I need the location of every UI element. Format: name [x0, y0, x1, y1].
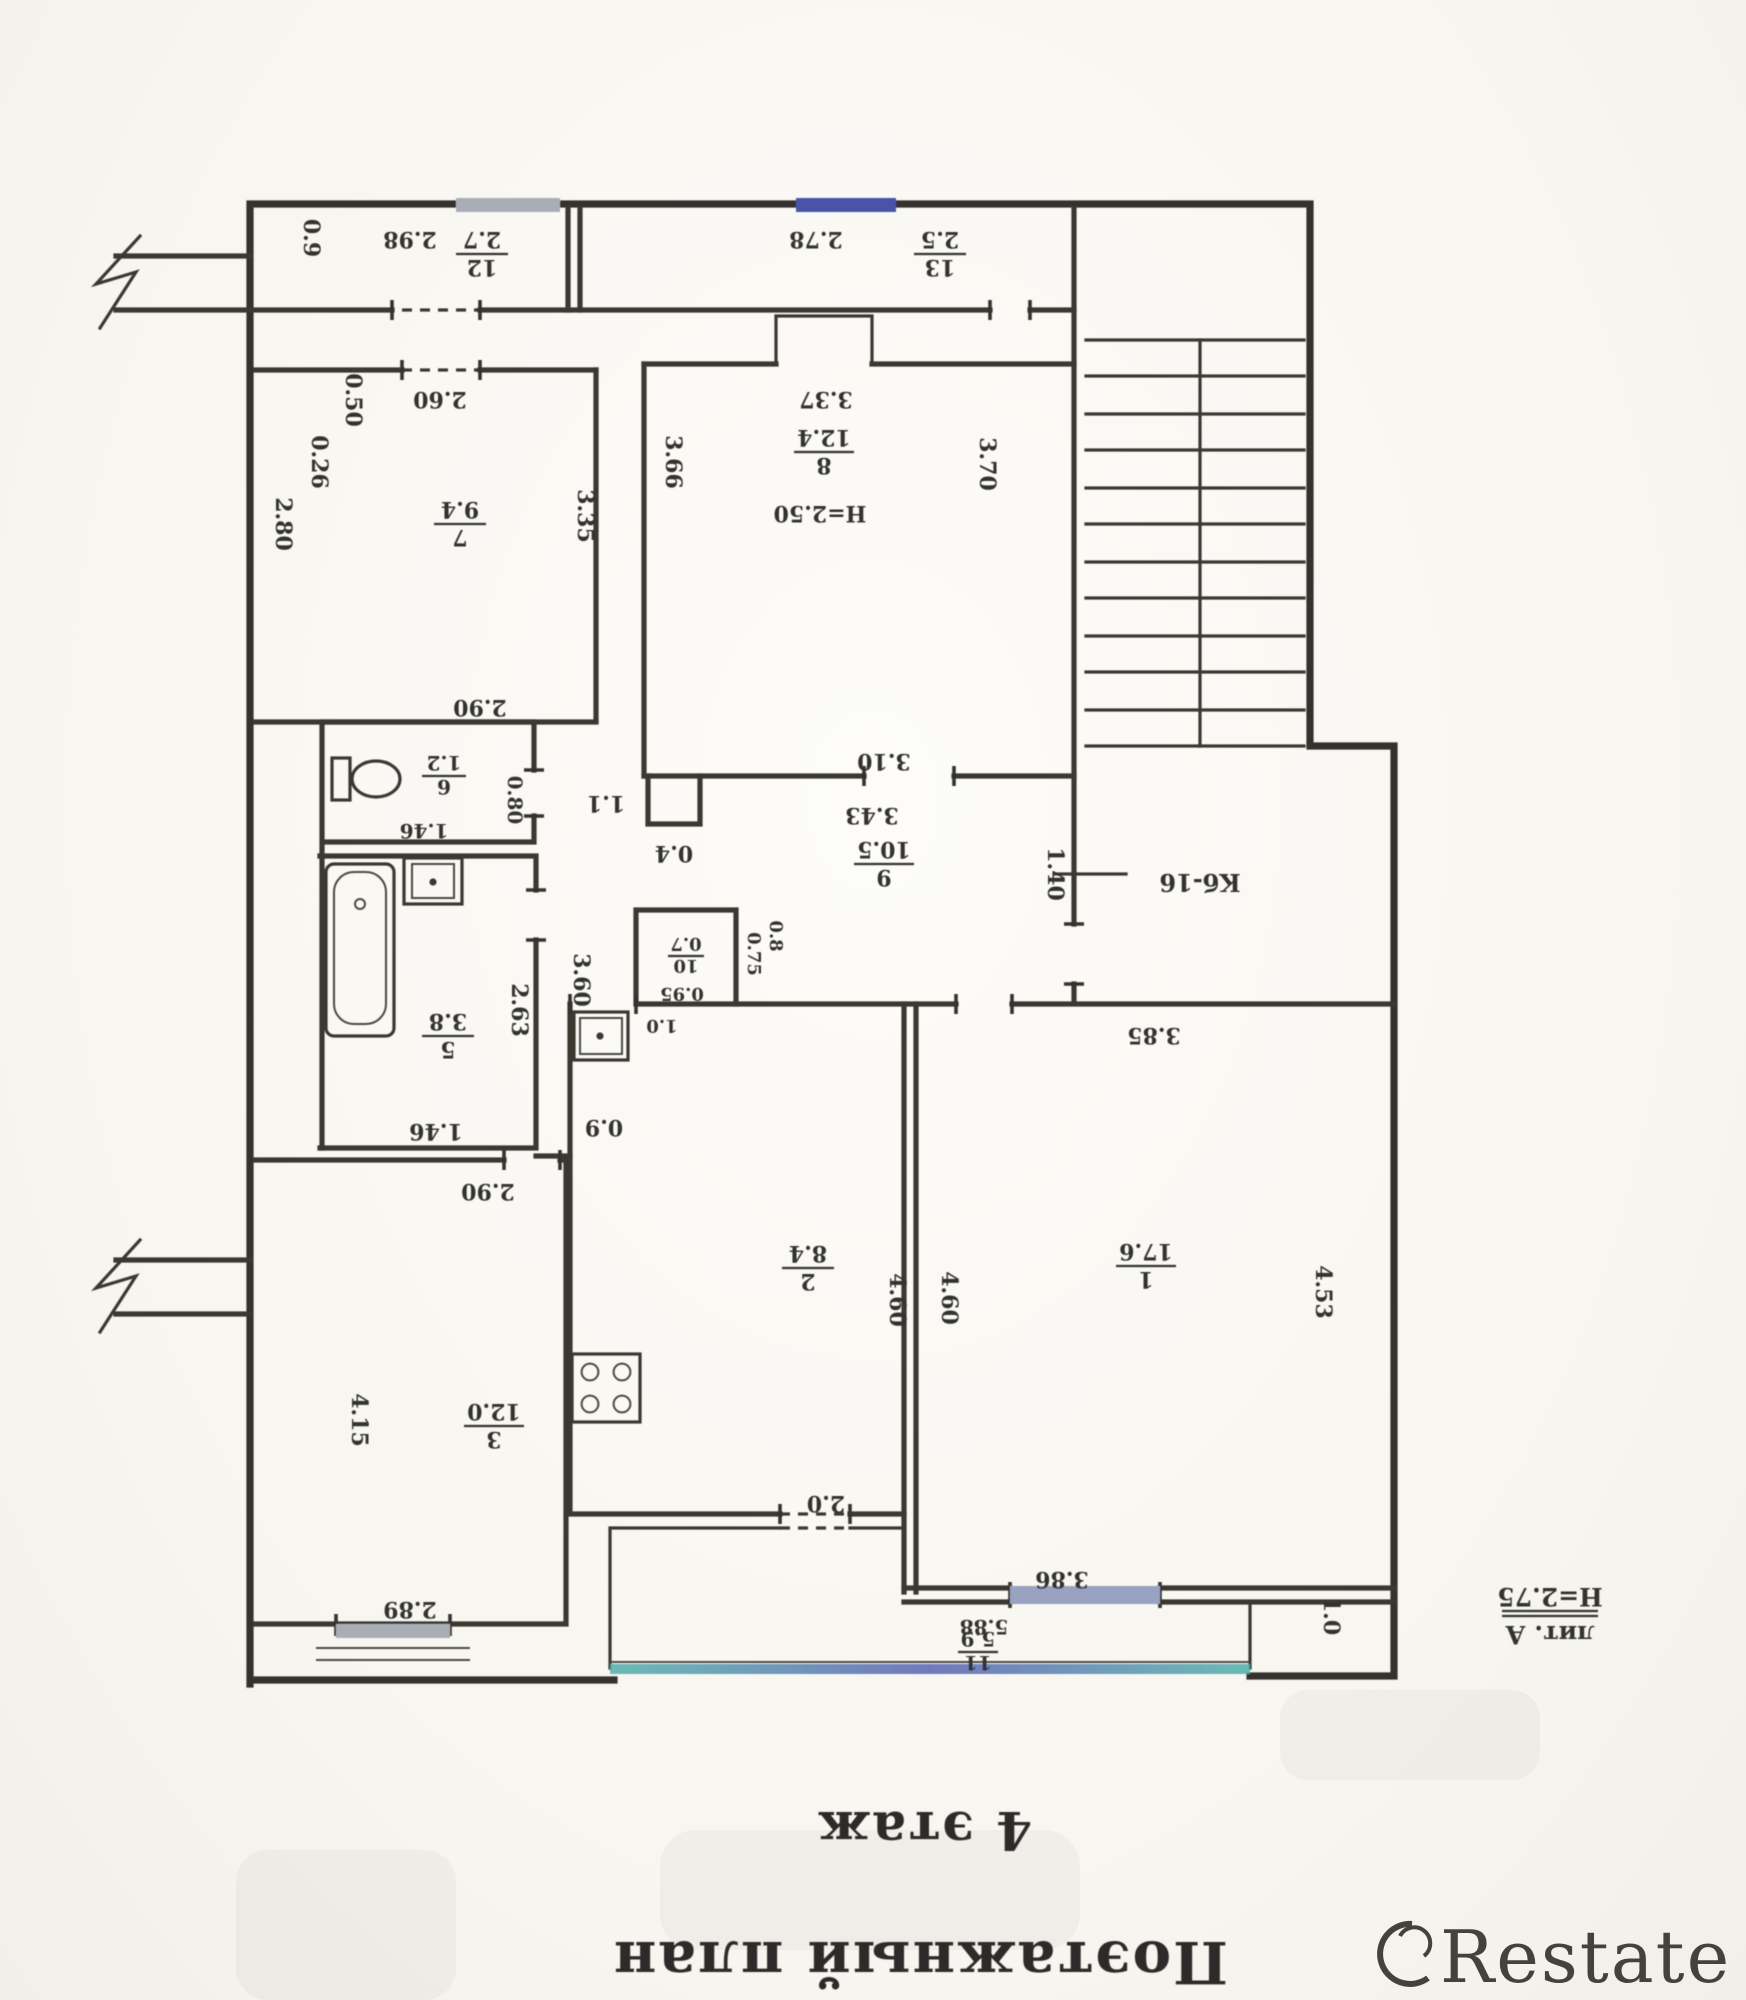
- room-label-9: 9 10.5: [854, 836, 914, 890]
- section-break-marks: [96, 236, 250, 1332]
- litera-label: лит. А: [1505, 1620, 1595, 1649]
- room-area: 3.8: [429, 1008, 467, 1034]
- dim-label: 1.46: [400, 819, 449, 843]
- dim-label: 1.40: [1042, 847, 1068, 901]
- bathtub-icon: [326, 864, 394, 1036]
- room-area: 1.2: [427, 751, 462, 775]
- dim-label: 4.15: [346, 1393, 372, 1447]
- room-label-10: 10 0.7: [668, 933, 704, 976]
- room-number: 10: [673, 955, 698, 976]
- plan-title-text: Поэтажный план: [612, 1928, 1228, 1996]
- dim-label: 3.85: [1127, 1022, 1181, 1048]
- stove-icon: [572, 1354, 640, 1422]
- room-number: 9: [876, 864, 891, 890]
- dim-label: 2.89: [383, 1596, 437, 1622]
- room-number: 1: [1138, 1266, 1153, 1292]
- dim-label: 0.75: [743, 932, 764, 976]
- dim-label: 0.26: [306, 435, 332, 489]
- dim-label: 0.95: [660, 983, 704, 1004]
- room-label-7: 7 9.4: [434, 496, 486, 550]
- dim-label: 1.0: [646, 1015, 677, 1036]
- toilet-icon: [332, 758, 400, 800]
- room-area: 8.4: [789, 1240, 827, 1266]
- dim-label: 4.53: [1310, 1265, 1336, 1319]
- room-label-3: 3 12.0: [464, 1398, 524, 1452]
- room-area: 17.6: [1119, 1238, 1173, 1264]
- room-area: 12.0: [467, 1398, 521, 1424]
- dim-label: 3.37: [799, 386, 853, 412]
- dim-label: 2.60: [413, 386, 467, 412]
- floor-title: 4 этаж: [816, 1799, 1032, 1860]
- dim-label: 3.10: [857, 748, 911, 774]
- dim-label: 1.46: [409, 1118, 463, 1144]
- room-number: 7: [452, 524, 467, 550]
- litera-height: Н=2.75: [1497, 1582, 1602, 1611]
- dim-label: 0.9: [298, 219, 324, 257]
- restate-brand-text: Restate: [1440, 1915, 1731, 1999]
- window-room3: [336, 1624, 450, 1638]
- dim-label: 3.66: [660, 435, 686, 489]
- dim-label: 0.9: [585, 1114, 623, 1140]
- stairwell-stairs: [1054, 340, 1304, 874]
- room-label-8: 8 12.4: [794, 424, 854, 478]
- dim-label: 3.43: [845, 802, 899, 828]
- dim-label: 2.90: [461, 1178, 515, 1204]
- bath-sink-icon: [404, 858, 462, 904]
- room-number: 5: [440, 1036, 455, 1062]
- room-number: 12: [467, 254, 498, 280]
- litera-note: лит. А Н=2.75: [1497, 1582, 1602, 1649]
- floor-title-text: 4 этаж: [816, 1799, 1032, 1860]
- dim-label: 0.4: [655, 840, 693, 866]
- dim-label: 1.1: [587, 790, 625, 816]
- window-room13: [796, 198, 896, 212]
- dim-label: 2.0: [807, 1490, 845, 1516]
- room-area: 12.4: [797, 424, 851, 450]
- dim-label: 2.63: [506, 983, 532, 1037]
- room-number: 8: [816, 452, 831, 478]
- dim-label: 4.60: [884, 1273, 910, 1327]
- room-number: 6: [437, 775, 451, 799]
- room-label-12: 12 2.7: [456, 226, 508, 280]
- room-number: 11: [964, 1651, 992, 1675]
- plan-title: Поэтажный план: [612, 1928, 1228, 1996]
- room-label-6: 6 1.2: [422, 751, 466, 799]
- room-area: 5.9: [961, 1627, 996, 1651]
- room-label-5: 5 3.8: [422, 1008, 474, 1062]
- room-label-13: 13 2.5: [914, 226, 966, 280]
- dim-label: 3.70: [974, 437, 1000, 491]
- dim-label: 0.50: [340, 373, 366, 427]
- dim-label: 0.80: [503, 776, 527, 825]
- floor-plan-canvas: 0.9 2.98 12 2.7 2.78 13 2.5 2.60 0.50 0.…: [0, 0, 1746, 2000]
- room-label-2: 2 8.4: [782, 1240, 834, 1294]
- room-area: 2.7: [463, 226, 501, 252]
- room-number: 2: [800, 1268, 815, 1294]
- dim-label: 2.98: [383, 226, 437, 252]
- kitchen-sink-icon: [574, 1012, 628, 1060]
- window-room12: [456, 198, 560, 212]
- room-area: 9.4: [441, 496, 479, 522]
- dim-label: 0.8: [765, 920, 786, 951]
- dim-label: 1.0: [1318, 1597, 1344, 1635]
- dim-label: 2.80: [270, 497, 296, 551]
- room-area: 10.5: [857, 836, 911, 862]
- dim-label: 2.78: [789, 226, 843, 252]
- restate-watermark: Restate: [1380, 1915, 1731, 1999]
- dim-label: 3.35: [572, 489, 598, 543]
- dim-label: 2.90: [453, 694, 507, 720]
- room-area: 2.5: [921, 226, 959, 252]
- dim-label: 3.86: [1035, 1566, 1089, 1592]
- room-area: 0.7: [670, 933, 701, 954]
- room-height-note: Н=2.50: [774, 500, 867, 526]
- room-label-1: 1 17.6: [1116, 1238, 1176, 1292]
- dim-label: 3.60: [568, 953, 594, 1007]
- balcony-railing: [610, 1664, 1250, 1674]
- room-number: 3: [486, 1426, 501, 1452]
- dim-label: 4.60: [936, 1271, 962, 1325]
- stair-beam-label: Кб-16: [1159, 868, 1240, 897]
- room-number: 13: [925, 254, 956, 280]
